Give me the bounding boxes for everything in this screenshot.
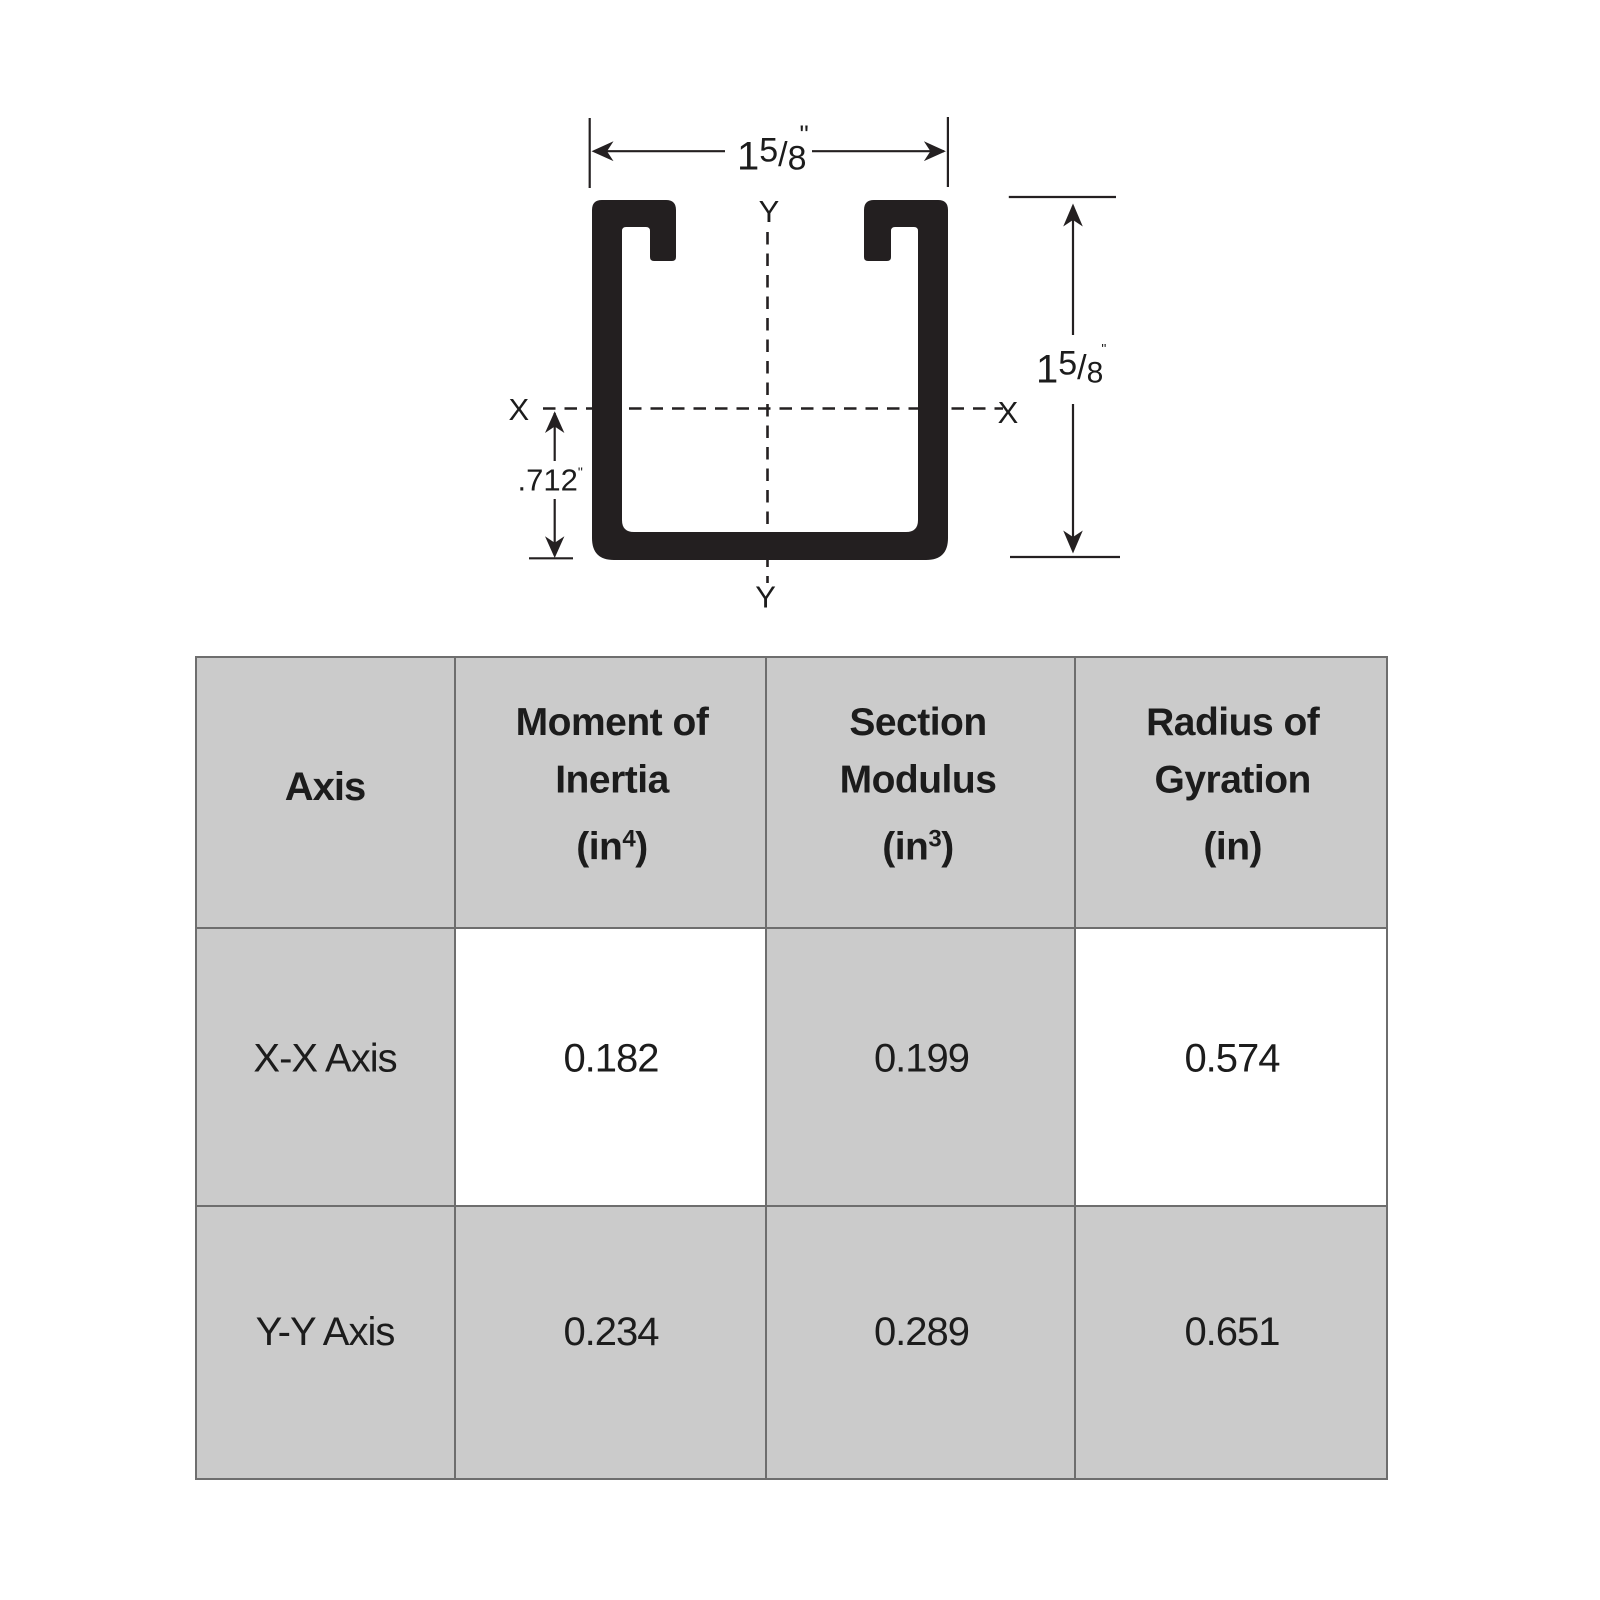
svg-text:(in4): (in4) [576,826,648,869]
svg-text:Y-Y Axis: Y-Y Axis [256,1310,395,1354]
svg-text:Inertia: Inertia [555,759,669,802]
svg-text:0.651: 0.651 [1184,1310,1279,1354]
svg-text:15/8": 15/8" [737,120,809,179]
svg-text:Gyration: Gyration [1155,759,1311,802]
svg-text:(in3): (in3) [882,826,954,869]
svg-text:Radius of: Radius of [1146,701,1321,744]
svg-text:Y: Y [759,194,780,229]
svg-text:0.199: 0.199 [874,1037,969,1081]
svg-text:(in): (in) [1203,826,1262,869]
svg-text:X-X Axis: X-X Axis [253,1037,396,1081]
svg-text:0.234: 0.234 [563,1310,659,1354]
svg-text:0.289: 0.289 [874,1310,969,1354]
svg-text:0.182: 0.182 [563,1037,658,1081]
svg-text:Moment of: Moment of [516,701,710,744]
svg-text:Section: Section [849,701,986,744]
svg-text:.712": .712" [518,463,583,498]
svg-text:Y: Y [755,580,776,615]
svg-text:X: X [508,392,529,427]
svg-text:X: X [998,395,1019,430]
svg-text:0.574: 0.574 [1184,1037,1280,1081]
svg-text:15/8": 15/8" [1036,341,1106,392]
svg-text:Modulus: Modulus [840,759,997,802]
svg-text:Axis: Axis [285,765,366,809]
